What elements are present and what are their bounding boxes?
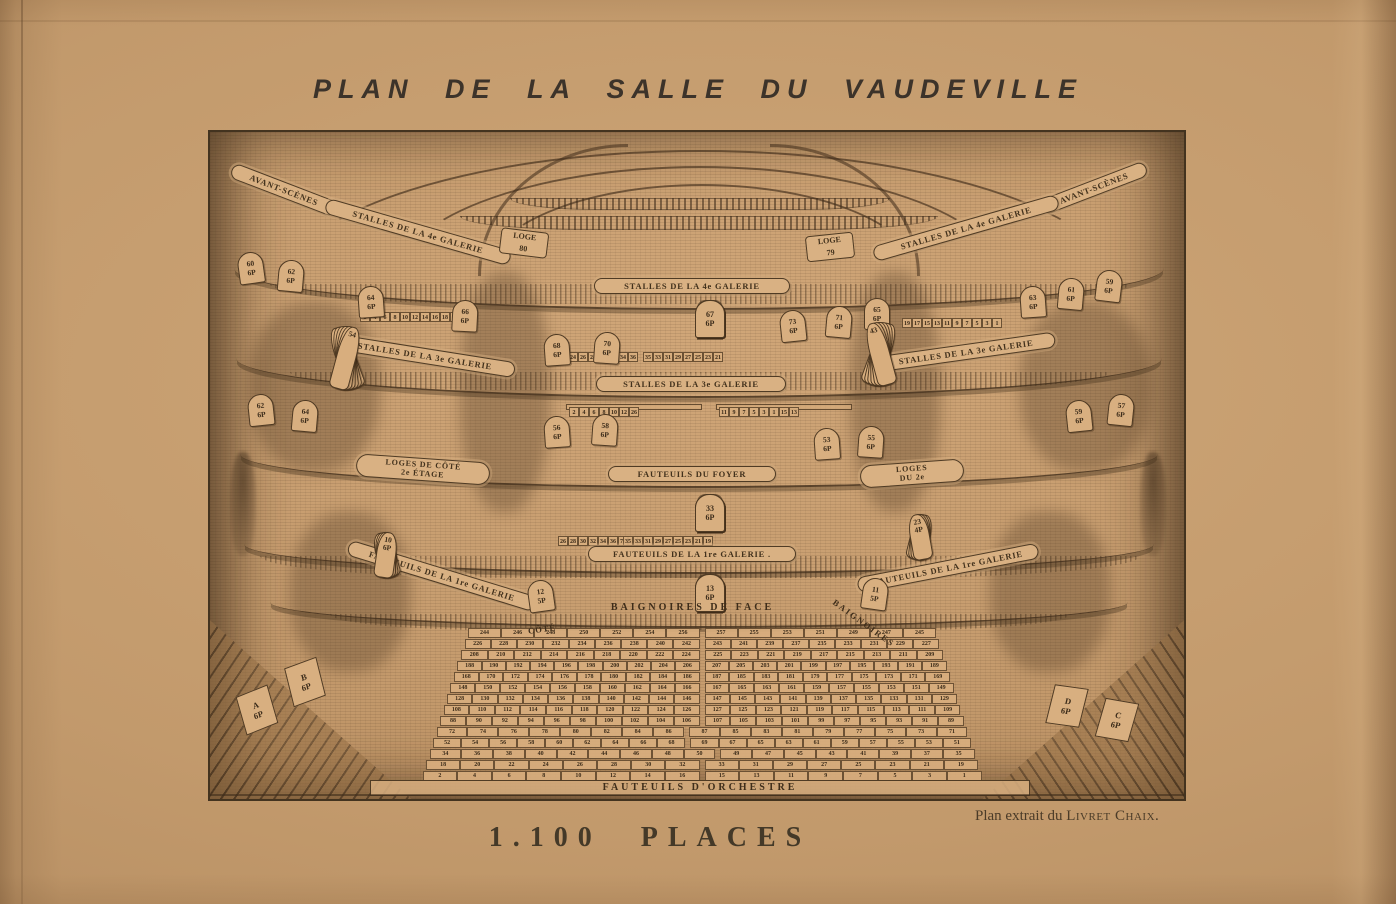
seat-number: 115 — [858, 705, 884, 715]
banner-avant-scenes-left: AVANT-SCÈNES — [229, 162, 339, 217]
banner-stalles-4e-center: STALLES DE LA 4e GALERIE — [594, 278, 790, 294]
seat-number: 230 — [517, 639, 543, 649]
loge-number: 66 — [461, 307, 469, 316]
seat-number: 118 — [572, 705, 598, 715]
seat-number: 103 — [756, 716, 782, 726]
seat-number: 154 — [525, 683, 550, 693]
seat-number: 223 — [731, 650, 758, 660]
orchestra-row: 2082102122142162182202222242252232212192… — [461, 650, 943, 660]
seat-number: 10 — [400, 312, 410, 322]
seat-number: 150 — [475, 683, 500, 693]
seat-number: 100 — [596, 716, 622, 726]
seat-number: 88 — [440, 716, 466, 726]
loge-box: 666P — [451, 299, 479, 332]
seat-number: 101 — [782, 716, 808, 726]
seat-number: 130 — [472, 694, 497, 704]
seat-number: 54 — [461, 738, 489, 748]
caption-total-places: 1.100 PLACES — [420, 822, 880, 854]
seat-number: 168 — [454, 672, 479, 682]
seat-number: 208 — [461, 650, 488, 660]
seat-number: 84 — [622, 727, 653, 737]
seat-number: 183 — [754, 672, 779, 682]
seat-number: 30 — [578, 536, 588, 546]
seat-number: 180 — [601, 672, 626, 682]
loge-price: 6P — [600, 430, 609, 440]
seat-number: 23 — [875, 760, 909, 770]
seat-number: 254 — [633, 628, 666, 638]
seat-number: 228 — [491, 639, 517, 649]
seat-number: 59 — [831, 738, 859, 748]
seat-number: 119 — [807, 705, 833, 715]
seat-number: 187 — [705, 672, 730, 682]
seat-number: 131 — [907, 694, 932, 704]
seat-number: 137 — [831, 694, 856, 704]
seat-number: 227 — [913, 639, 939, 649]
seat-number: 236 — [595, 639, 621, 649]
seat-number: 49 — [720, 749, 752, 759]
loge-price: 6P — [602, 348, 611, 358]
seat-number: 120 — [597, 705, 623, 715]
seat-number: 79 — [813, 727, 844, 737]
seat-number: 104 — [648, 716, 674, 726]
seat-number: 66 — [629, 738, 657, 748]
seat-number: 102 — [622, 716, 648, 726]
seat-number: 190 — [482, 661, 506, 671]
seat-number: 220 — [620, 650, 647, 660]
seat-number: 143 — [755, 694, 780, 704]
seat-number: 97 — [834, 716, 860, 726]
seat-number: 198 — [578, 661, 602, 671]
seat-number: 108 — [444, 705, 470, 715]
seat-number: 29 — [673, 352, 683, 362]
seat-number: 51 — [943, 738, 971, 748]
seat-number: 136 — [548, 694, 573, 704]
seat-number: 215 — [837, 650, 864, 660]
credit-line: Plan extrait du Livret Chaix. — [975, 808, 1159, 825]
seat-number: 5 — [749, 407, 759, 417]
seat-number: 91 — [912, 716, 938, 726]
seat-number: 28 — [568, 536, 578, 546]
seat-number: 43 — [869, 326, 878, 336]
orchestra-row: 1481501521541561581601621641661671651631… — [451, 683, 954, 693]
seat-number: 210 — [488, 650, 515, 660]
seat-number: 250 — [567, 628, 600, 638]
loge-box: 336P — [695, 494, 725, 532]
seat-number: 162 — [625, 683, 650, 693]
seat-number: 44 — [588, 749, 620, 759]
seat-number: 25 — [673, 536, 683, 546]
seat-number: 29 — [773, 760, 807, 770]
seat-number: 117 — [832, 705, 858, 715]
seat-number: 113 — [884, 705, 910, 715]
orchestra-row: 1881901921941961982002022042062072052032… — [458, 661, 947, 671]
seat-number: 3 — [982, 318, 992, 328]
seat-number: 142 — [624, 694, 649, 704]
seat-number: 23 — [683, 536, 693, 546]
seat-number: 134 — [523, 694, 548, 704]
seat-number: 1 — [992, 318, 1002, 328]
loge-box: 566P — [543, 415, 571, 449]
seat-number: 19 — [902, 318, 912, 328]
seat-number: 40 — [525, 749, 557, 759]
seat-number: 245 — [903, 628, 936, 638]
loge-price: 6P — [300, 416, 309, 426]
seat-number: 140 — [599, 694, 624, 704]
seat-number: 178 — [577, 672, 602, 682]
seat-number: 144 — [649, 694, 674, 704]
seat-number: 94 — [518, 716, 544, 726]
page-crease — [0, 20, 1396, 22]
seat-number: 76 — [498, 727, 529, 737]
seat-number: 25 — [841, 760, 875, 770]
seat-number: 199 — [801, 661, 825, 671]
seat-number: 202 — [627, 661, 651, 671]
seat-number: 1 — [769, 407, 779, 417]
seat-number: 36 — [628, 352, 638, 362]
seat-number: 238 — [621, 639, 647, 649]
seat-number: 37 — [911, 749, 943, 759]
credit-source: Livret Chaix — [1066, 808, 1155, 824]
loge-box: 716P — [825, 305, 854, 339]
seat-number: 9 — [952, 318, 962, 328]
seat-number: 31 — [739, 760, 773, 770]
seat-number: 20 — [460, 760, 494, 770]
orchestra-row: 1681701721741761781801821841861871851831… — [454, 672, 950, 682]
seat-number: 42 — [557, 749, 589, 759]
seat-number: 69 — [690, 738, 718, 748]
seat-number: 61 — [803, 738, 831, 748]
seat-number: 193 — [874, 661, 898, 671]
seat-number: 114 — [520, 705, 546, 715]
seat-number: 26 — [558, 536, 568, 546]
loge-box: 676P — [695, 300, 725, 338]
seat-number: 126 — [674, 705, 700, 715]
seat-number: 16 — [430, 312, 440, 322]
loge-price: 6P — [706, 513, 715, 522]
seat-number: 99 — [808, 716, 834, 726]
seat-number: 164 — [650, 683, 675, 693]
page-crease — [21, 0, 23, 904]
seat-number: 5 — [972, 318, 982, 328]
seat-number: 7 — [962, 318, 972, 328]
credit-text: Plan extrait du — [975, 808, 1066, 824]
seat-number: 242 — [673, 639, 699, 649]
seat-number: 107 — [705, 716, 731, 726]
loge-number: 67 — [706, 310, 714, 319]
loge-price: 6P — [460, 316, 469, 325]
seat-number: 60 — [545, 738, 573, 748]
loge-box: 616P — [1057, 277, 1086, 311]
loge-box: 646P — [291, 399, 320, 433]
seat-number: 219 — [784, 650, 811, 660]
orchestra-row: 7274767880828486878583817977757371 — [437, 727, 968, 737]
seat-number: 28 — [597, 760, 631, 770]
loge-price: 6P — [706, 593, 715, 602]
seat-number: 212 — [514, 650, 541, 660]
seat-number: 195 — [850, 661, 874, 671]
box-price: 6P — [253, 708, 265, 721]
seat-number: 75 — [875, 727, 906, 737]
loge-box: 556P — [857, 425, 885, 459]
seat-number: 204 — [651, 661, 675, 671]
seat-number: 92 — [492, 716, 518, 726]
loge-box: 636P — [1019, 285, 1047, 319]
seat-number: 256 — [666, 628, 699, 638]
seat-number: 96 — [544, 716, 570, 726]
seat-number: 29 — [653, 536, 663, 546]
page-edge — [1332, 0, 1396, 904]
seat-row: 191715131197531 — [902, 318, 1002, 328]
seat-number: 68 — [657, 738, 685, 748]
loge-box: 596P — [1094, 269, 1124, 304]
seat-number: 47 — [752, 749, 784, 759]
seat-number: 18 — [426, 760, 460, 770]
seat-number: 86 — [653, 727, 684, 737]
seat-number: 38 — [493, 749, 525, 759]
seat-number: 95 — [860, 716, 886, 726]
loge-price: 5P — [537, 595, 547, 605]
loge-box: 536P — [813, 427, 841, 461]
seat-number: 80 — [560, 727, 591, 737]
seat-number: 161 — [779, 683, 804, 693]
loge-number: 80 — [519, 244, 528, 254]
loge-box: 706P — [593, 331, 621, 365]
seat-number: 67 — [719, 738, 747, 748]
seat-number: 89 — [938, 716, 964, 726]
seat-number: 58 — [517, 738, 545, 748]
seat-number: 244 — [468, 628, 501, 638]
seat-number: 141 — [780, 694, 805, 704]
seat-number: 39 — [879, 749, 911, 759]
loge-price: 6P — [823, 444, 832, 454]
seat-number: 175 — [852, 672, 877, 682]
seat-number: 11 — [942, 318, 952, 328]
seat-price: 6P — [382, 544, 391, 553]
seat-number: 87 — [689, 727, 720, 737]
seat-number: 90 — [466, 716, 492, 726]
seat-number: 93 — [886, 716, 912, 726]
loge-price: 6P — [706, 319, 715, 328]
seat-number: 21 — [910, 760, 944, 770]
seat-number: 26 — [629, 407, 639, 417]
seat-number: 15 — [922, 318, 932, 328]
seat-number: 181 — [778, 672, 803, 682]
loge-price: 6P — [866, 442, 875, 452]
loge-price: 6P — [1066, 294, 1075, 304]
seat-number: 77 — [844, 727, 875, 737]
seat-number: 7 — [739, 407, 749, 417]
seat-row: 22242628303234363533312927252321 — [558, 352, 723, 362]
loge-box: 686P — [543, 333, 571, 367]
seat-number: 43 — [816, 749, 848, 759]
loge-price: 5P — [870, 593, 880, 603]
seat-number: 251 — [804, 628, 837, 638]
loge-number: 65 — [873, 305, 881, 314]
seat-number: 165 — [729, 683, 754, 693]
seat-number: 109 — [935, 705, 961, 715]
seat-number: 98 — [570, 716, 596, 726]
seat-row: 262830323436353331292725232119 — [558, 536, 713, 546]
seat-number: 135 — [856, 694, 881, 704]
seat-number: 224 — [673, 650, 700, 660]
seat-number: 33 — [653, 352, 663, 362]
seat-number: 185 — [729, 672, 754, 682]
loge-price: 6P — [247, 267, 257, 277]
seat-number: 155 — [854, 683, 879, 693]
seat-number: 201 — [777, 661, 801, 671]
seat-number: 243 — [705, 639, 731, 649]
seat-number: 207 — [705, 661, 729, 671]
loge-price: 6P — [1075, 416, 1084, 426]
seat-number: 78 — [529, 727, 560, 737]
seat-number: 166 — [675, 683, 700, 693]
seat-number: 169 — [925, 672, 950, 682]
seat-number: 121 — [781, 705, 807, 715]
seat-number: 146 — [674, 694, 699, 704]
loge-number: 13 — [706, 584, 714, 593]
seat-number: 129 — [932, 694, 957, 704]
stage-floor-line — [210, 799, 1184, 801]
seat-number: 27 — [683, 352, 693, 362]
orchestra-row: 1081101121141161181201221241261271251231… — [444, 705, 961, 715]
seat-number: 124 — [648, 705, 674, 715]
seat-number: 12 — [619, 407, 629, 417]
seat-number: 23 — [703, 352, 713, 362]
seat-number: 9 — [729, 407, 739, 417]
seat-number: 56 — [489, 738, 517, 748]
seat-number: 186 — [675, 672, 700, 682]
orchestra-row: 18202224262830323331292725232119 — [426, 760, 978, 770]
seat-number: 83 — [751, 727, 782, 737]
seat-number: 147 — [705, 694, 730, 704]
seat-number: 31 — [663, 352, 673, 362]
seat-number: 24 — [529, 760, 563, 770]
seat-number: 203 — [753, 661, 777, 671]
seat-number: 222 — [647, 650, 674, 660]
seat-number: 158 — [575, 683, 600, 693]
seat-number: 235 — [809, 639, 835, 649]
seat-number: 123 — [756, 705, 782, 715]
gallery-3-grid-right: 5351494745434139373533312927252321191715… — [716, 404, 852, 410]
seat-number: 32 — [588, 536, 598, 546]
seat-number: 200 — [603, 661, 627, 671]
seat-number: 65 — [747, 738, 775, 748]
seat-number: 221 — [758, 650, 785, 660]
seat-number: 172 — [503, 672, 528, 682]
seat-number: 27 — [807, 760, 841, 770]
seat-number: 191 — [898, 661, 922, 671]
seat-number: 71 — [937, 727, 968, 737]
seat-number: 41 — [847, 749, 879, 759]
seat-number: 46 — [620, 749, 652, 759]
seat-number: 111 — [909, 705, 935, 715]
seat-number: 197 — [826, 661, 850, 671]
loge-price: 6P — [257, 410, 266, 420]
box-price: 6P — [1060, 705, 1072, 716]
amphitheatre-rows — [510, 198, 890, 210]
seat-number: 214 — [541, 650, 568, 660]
seat-number: 13 — [789, 407, 799, 417]
seat-number: 206 — [675, 661, 699, 671]
seat-number: 160 — [600, 683, 625, 693]
seat-number: 62 — [573, 738, 601, 748]
seat-number: 152 — [500, 683, 525, 693]
seat-number: 176 — [552, 672, 577, 682]
theater-seating-plan-engraving: 343638404244464850522468101214161820 514… — [208, 130, 1186, 801]
seat-number: 35 — [623, 536, 633, 546]
seat-number: 189 — [922, 661, 946, 671]
orchestra-row: 2262282302322342362382402422432412392372… — [465, 639, 940, 649]
seat-number: 192 — [506, 661, 530, 671]
loge-price: 6P — [1029, 302, 1038, 312]
seat-number: 184 — [650, 672, 675, 682]
page-title: PLAN DE LA SALLE DU VAUDEVILLE — [0, 74, 1396, 105]
banner-fauteuils-1re-center: FAUTEUILS DE LA 1re GALERIE . — [588, 546, 796, 562]
seat-number: 36 — [608, 536, 618, 546]
seat-number: 8 — [390, 312, 400, 322]
seat-number: 45 — [784, 749, 816, 759]
seat-number: 2 — [569, 407, 579, 417]
label-baignoires-de-face: BAIGNOIRES DE FACE — [590, 602, 795, 613]
seat-number: 53 — [915, 738, 943, 748]
banner-fauteuils-foyer: FAUTEUILS DU FOYER — [608, 466, 776, 482]
seat-number: 12 — [410, 312, 420, 322]
seat-number: 11 — [719, 407, 729, 417]
seat-number: 234 — [569, 639, 595, 649]
seat-number: 196 — [554, 661, 578, 671]
seat-number: 14 — [420, 312, 430, 322]
seat-number: 85 — [720, 727, 751, 737]
loge-price: 6P — [1116, 410, 1125, 420]
orchestra-row: 52545658606264666869676563615957555351 — [433, 738, 971, 748]
loge-box: 626P — [277, 259, 306, 293]
seat-number: 31 — [643, 536, 653, 546]
seat-number: 209 — [917, 650, 944, 660]
seat-number: 145 — [730, 694, 755, 704]
seat-number: 26 — [563, 760, 597, 770]
seat-number: 25 — [693, 352, 703, 362]
orchestra-row: 3436384042444648504947454341393735 — [430, 749, 975, 759]
seat-number: 27 — [663, 536, 673, 546]
loge-number: 79 — [826, 248, 835, 258]
loge-price: 6P — [1104, 285, 1113, 295]
seat-number: 163 — [754, 683, 779, 693]
seat-number: 167 — [705, 683, 730, 693]
seat-number: 54 — [348, 330, 357, 340]
seat-number: 3 — [759, 407, 769, 417]
seat-number: 240 — [647, 639, 673, 649]
credit-text: . — [1155, 808, 1159, 824]
seat-number: 133 — [881, 694, 906, 704]
seat-number: 157 — [829, 683, 854, 693]
seat-number: 55 — [887, 738, 915, 748]
seat-number: 50 — [684, 749, 716, 759]
seat-number: 173 — [876, 672, 901, 682]
seat-number: 19 — [944, 760, 978, 770]
seat-number: 13 — [932, 318, 942, 328]
seat-number: 239 — [757, 639, 783, 649]
seat-number: 218 — [594, 650, 621, 660]
seat-number: 170 — [479, 672, 504, 682]
loge-box: 586P — [591, 413, 619, 447]
loge-word: LOGE — [817, 235, 841, 246]
seat-number: 35 — [643, 352, 653, 362]
seat-number: 15 — [779, 407, 789, 417]
loge-price: 6P — [834, 322, 843, 332]
seat-number: 257 — [705, 628, 738, 638]
seat-number: 151 — [904, 683, 929, 693]
seat-number: 122 — [623, 705, 649, 715]
